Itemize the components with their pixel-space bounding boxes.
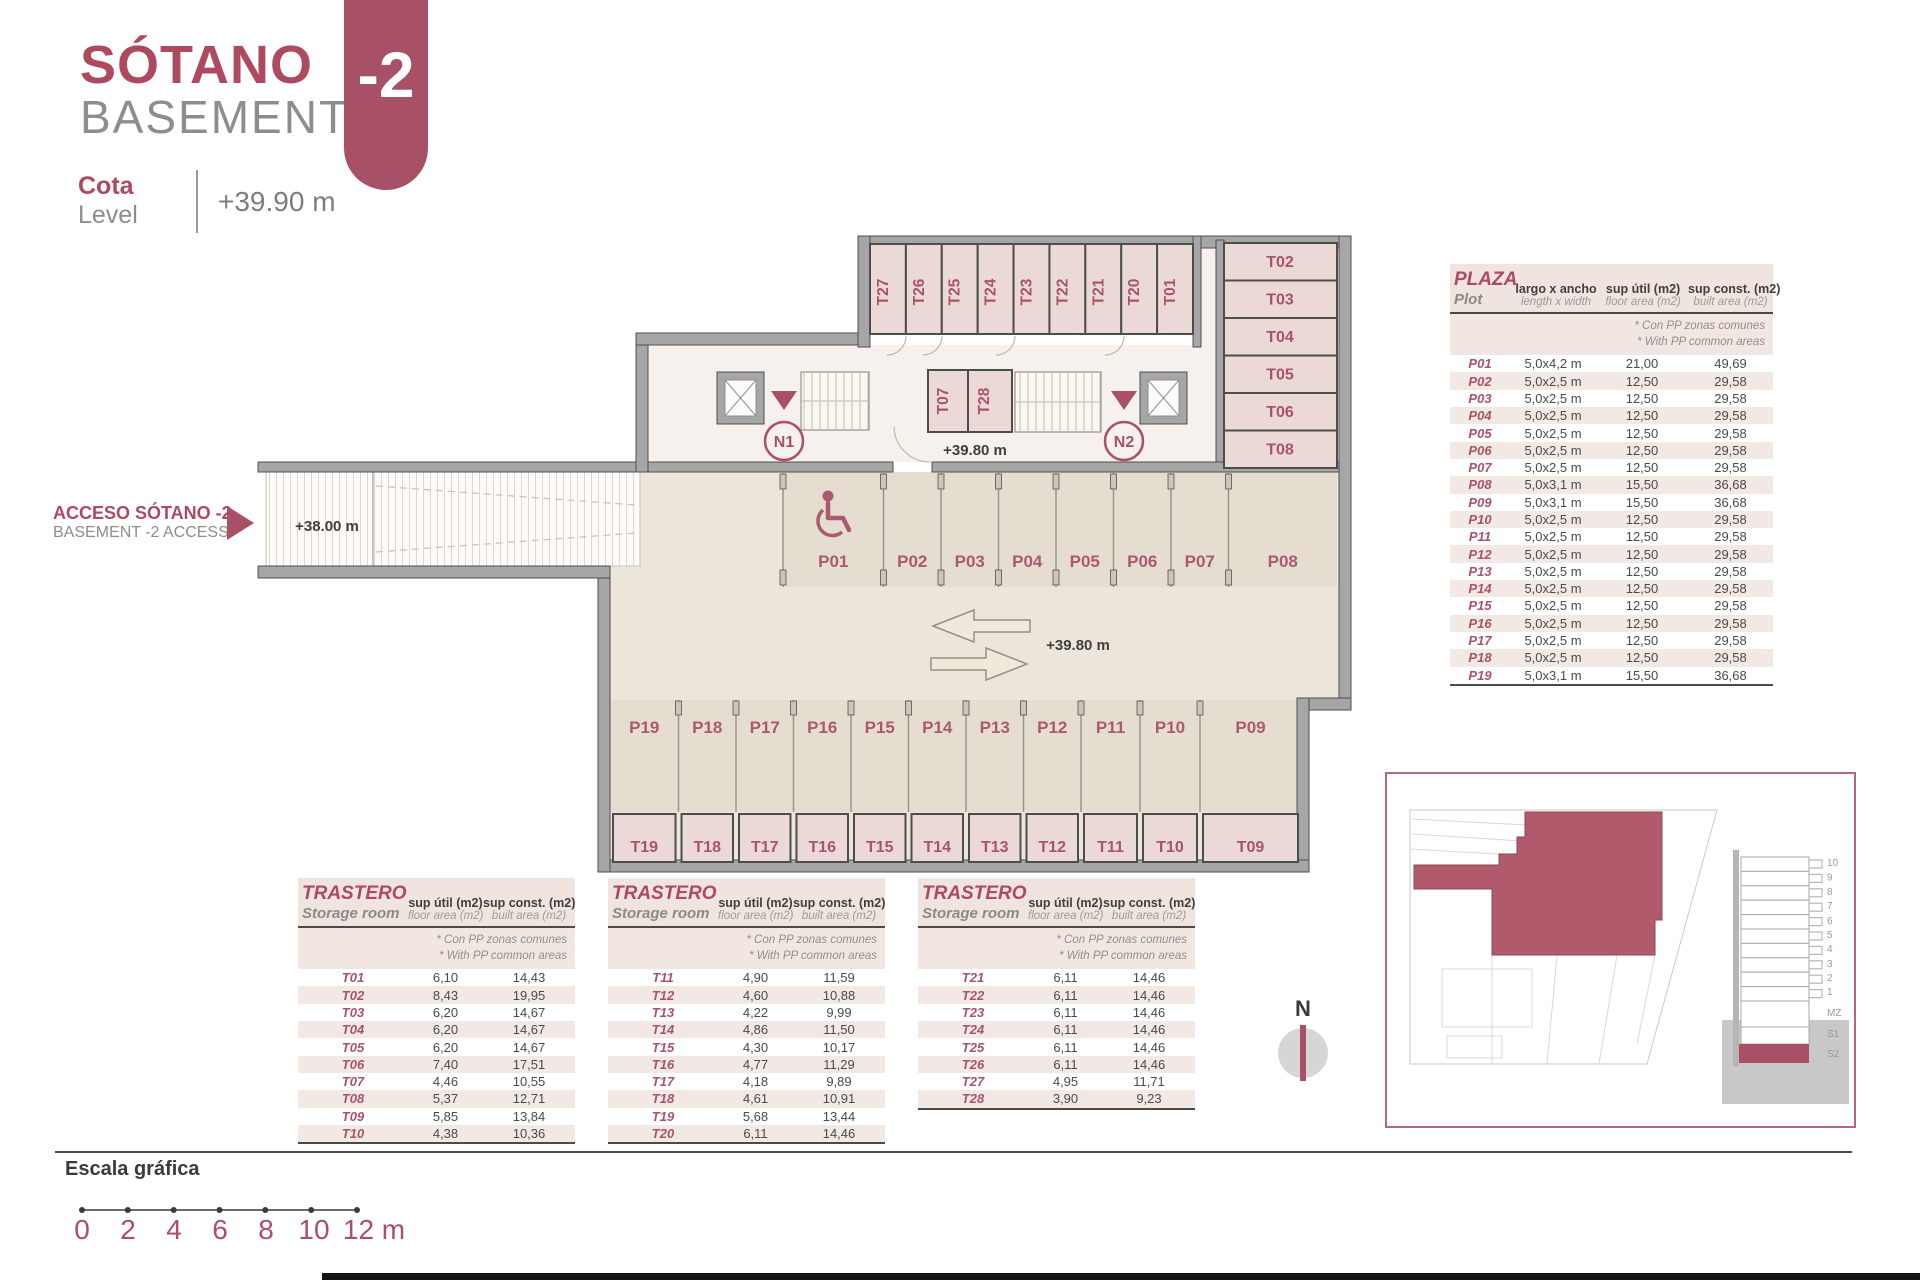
aisle-level-label: +39.80 m (1046, 637, 1110, 654)
page-subtitle: BASEMENT (80, 90, 349, 144)
room-label: T01 (1162, 278, 1179, 305)
room-label: T18 (693, 839, 721, 856)
table-row: T283,909,23 (918, 1090, 1195, 1107)
table-row: T206,1114,46 (608, 1125, 885, 1142)
plaza-title-es: PLAZA (1454, 269, 1514, 291)
section-floor-label: 2 (1827, 973, 1833, 984)
arrow-right-icon (931, 648, 1027, 680)
page-title: SÓTANO (80, 34, 313, 96)
table-row: T028,4319,95 (298, 986, 575, 1003)
table-row: P115,0x2,5 m12,5029,58 (1450, 528, 1773, 545)
level-label-es: Cota (78, 172, 134, 201)
table-row: T184,6110,91 (608, 1090, 885, 1107)
room-label: T05 (1266, 367, 1294, 384)
section-floor-label: S1 (1827, 1029, 1840, 1040)
table-row: T246,1114,46 (918, 1021, 1195, 1038)
north-core-triangle-icon (1111, 391, 1137, 410)
table-row: T256,1114,46 (918, 1038, 1195, 1055)
table-row: P185,0x2,5 m12,5029,58 (1450, 649, 1773, 666)
storage-table-3: TRASTERO Storage room sup útil (m2)floor… (918, 878, 1195, 1110)
table-row: T104,3810,36 (298, 1125, 575, 1142)
table-row: P025,0x2,5 m12,5029,58 (1450, 372, 1773, 389)
parking-stall-label: P04 (1012, 552, 1043, 571)
parking-stall-label: P18 (692, 718, 722, 737)
wheelchair-icon (818, 491, 849, 536)
scale-tick: 8 (258, 1214, 274, 1246)
room-label: T02 (1266, 254, 1294, 271)
room-label: T11 (1097, 839, 1124, 856)
section-floor-label: 1 (1827, 987, 1833, 998)
table-row: T046,2014,67 (298, 1021, 575, 1038)
section-floor-label: S2 (1827, 1049, 1840, 1060)
table-row: T164,7711,29 (608, 1056, 885, 1073)
scale-tick: 10 (298, 1214, 329, 1246)
parking-stall-label: P08 (1268, 552, 1298, 571)
table-row: P065,0x2,5 m12,5029,58 (1450, 442, 1773, 459)
compass-icon (1278, 1028, 1328, 1078)
table-row: T266,1114,46 (918, 1056, 1195, 1073)
table-row: P165,0x2,5 m12,5029,58 (1450, 615, 1773, 632)
room-label: T27 (875, 279, 892, 306)
table-row: P125,0x2,5 m12,5029,58 (1450, 545, 1773, 562)
highlighted-level-s2 (1739, 1044, 1809, 1063)
elevator-icon (1140, 372, 1187, 424)
plaza-title-en: Plot (1454, 291, 1514, 308)
table-row: T124,6010,88 (608, 986, 885, 1003)
footer-divider (55, 1151, 1852, 1153)
storage-table-1: TRASTERO Storage room sup útil (m2)floor… (298, 878, 575, 1144)
building-section: 10987654321MZS1S2 (1722, 850, 1849, 1104)
floor-fills (610, 240, 1339, 860)
table-row: T134,229,99 (608, 1004, 885, 1021)
table-row: T074,4610,55 (298, 1073, 575, 1090)
parking-stall-label: P12 (1037, 718, 1067, 737)
floor-badge: -2 (344, 0, 428, 190)
core-level-label: +39.80 m (943, 442, 1007, 459)
table-row: T195,6813,44 (608, 1108, 885, 1125)
storage-rooms-right: T02T03T04T05T06T08 (1224, 243, 1337, 468)
table-row: T016,1014,43 (298, 969, 575, 986)
access-label-en: BASEMENT -2 ACCESS (53, 524, 215, 542)
scale-tick: 12 m (343, 1214, 405, 1246)
room-label: T10 (1156, 839, 1184, 856)
room-label: T19 (630, 839, 658, 856)
building-footprint (1414, 812, 1662, 955)
room-label: T23 (1019, 278, 1036, 305)
plaza-table-header: PLAZA Plot largo x ancholength x width s… (1450, 264, 1773, 314)
section-floor-label: 10 (1827, 858, 1839, 869)
parking-row-bottom: P19P18P17P16P15P14P13P12P11P10P09 (629, 700, 1266, 812)
section-floor-label: 8 (1827, 887, 1833, 898)
parking-stall-label: P05 (1070, 552, 1100, 571)
parking-stall-label: P14 (922, 718, 953, 737)
room-label: T15 (866, 839, 894, 856)
parking-stall-label: P19 (629, 718, 659, 737)
table-row: P085,0x3,1 m15,5036,68 (1450, 476, 1773, 493)
table-row: T036,2014,67 (298, 1004, 575, 1021)
table-row: T236,1114,46 (918, 1004, 1195, 1021)
table-row: T154,3010,17 (608, 1038, 885, 1055)
page-edge-bar (322, 1273, 1920, 1280)
scale-tick: 2 (120, 1214, 136, 1246)
scale-tick: 6 (212, 1214, 228, 1246)
room-label: T21 (1090, 278, 1107, 305)
storage-rooms-bottom: T19T18T17T16T15T14T13T12T11T10T09 (613, 814, 1298, 862)
table-row: P135,0x2,5 m12,5029,58 (1450, 563, 1773, 580)
parking-stall-label: P02 (897, 552, 927, 571)
table-row: P175,0x2,5 m12,5029,58 (1450, 632, 1773, 649)
scale-tick: 4 (166, 1214, 182, 1246)
section-floor-label: 4 (1827, 944, 1833, 955)
parking-stall-label: P13 (980, 718, 1010, 737)
section-floor-label: 6 (1827, 916, 1833, 927)
table-row: P195,0x3,1 m15,5036,68 (1450, 667, 1773, 684)
access-arrow-icon (227, 506, 254, 540)
room-label: T06 (1266, 404, 1294, 421)
room-label: T09 (1237, 839, 1265, 856)
section-floor-label: 5 (1827, 930, 1833, 941)
scale-tick: 0 (74, 1214, 90, 1246)
ramp-level-label: +38.00 m (295, 518, 359, 535)
core-label-n1: N1 (774, 434, 795, 451)
parking-stall-label: P07 (1185, 552, 1215, 571)
level-value: +39.90 m (218, 186, 336, 218)
room-label: T22 (1054, 279, 1071, 306)
arrow-left-icon (933, 610, 1030, 642)
parking-stall-label: P17 (750, 718, 780, 737)
stairs-icon (1015, 372, 1101, 432)
drive-aisle: +39.80 m (931, 610, 1110, 680)
table-row: P095,0x3,1 m15,5036,68 (1450, 494, 1773, 511)
plaza-table-note: * Con PP zonas comunes * With PP common … (1450, 314, 1773, 355)
table-row: T216,1114,46 (918, 969, 1195, 986)
north-core-triangle-icon (771, 391, 797, 410)
table-row: T226,1114,46 (918, 986, 1195, 1003)
section-floor-label: 3 (1827, 959, 1833, 970)
access-label-es: ACCESO SÓTANO -2 (53, 503, 215, 524)
table-row: T174,189,89 (608, 1073, 885, 1090)
table-row: T085,3712,71 (298, 1090, 575, 1107)
table-row: T095,8513,84 (298, 1108, 575, 1125)
stairs-icon (801, 372, 869, 430)
room-label: T12 (1038, 839, 1066, 856)
parking-stall-label: P09 (1235, 718, 1265, 737)
north-compass: N (1277, 996, 1329, 1078)
table-row: P035,0x2,5 m12,5029,58 (1450, 390, 1773, 407)
plaza-table: PLAZA Plot largo x ancholength x width s… (1450, 264, 1773, 686)
section-floor-label: 7 (1827, 901, 1833, 912)
plaza-table-body: P015,0x4,2 m21,0049,69P025,0x2,5 m12,502… (1450, 355, 1773, 686)
stair-elevator-core: N1 N2 +39.80 m T07T28 (717, 370, 1187, 460)
table-row: T144,8611,50 (608, 1021, 885, 1038)
storage-table-2: TRASTERO Storage room sup útil (m2)floor… (608, 878, 885, 1144)
room-label: T04 (1266, 329, 1294, 346)
access-ramp: +38.00 m (266, 472, 640, 566)
parking-stall-label: P10 (1155, 718, 1185, 737)
parking-stall-label: P06 (1127, 552, 1157, 571)
parking-row-top: P01P02P03P04P05P06P07P08 (780, 472, 1298, 587)
table-row: T056,2014,67 (298, 1038, 575, 1055)
table-row: T274,9511,71 (918, 1073, 1195, 1090)
north-label: N (1277, 996, 1329, 1022)
section-floor-label: 9 (1827, 873, 1833, 884)
divider (196, 170, 198, 233)
walls (258, 236, 1351, 872)
storage-rooms-top: T27T26T25T24T23T22T21T20T01 (870, 244, 1193, 334)
table-row: T114,9011,59 (608, 969, 885, 986)
core-badge-n1 (765, 422, 803, 460)
room-label: T28 (976, 387, 993, 414)
elevator-icon (717, 372, 764, 424)
room-label: T24 (983, 278, 1000, 305)
room-label: T08 (1266, 442, 1294, 459)
section-floor-label: MZ (1827, 1008, 1841, 1019)
room-label: T17 (751, 839, 779, 856)
room-label: T13 (981, 839, 1009, 856)
table-row: P045,0x2,5 m12,5029,58 (1450, 407, 1773, 424)
table-row: T067,4017,51 (298, 1056, 575, 1073)
plan-sheet: SÓTANO BASEMENT Cota Level +39.90 m -2 A… (0, 0, 1920, 1280)
table-row: P105,0x2,5 m12,5029,58 (1450, 511, 1773, 528)
parking-stall-label: P03 (955, 552, 985, 571)
level-label-en: Level (78, 201, 138, 230)
room-label: T16 (808, 839, 836, 856)
parking-stall-label: P16 (807, 718, 837, 737)
core-label-n2: N2 (1114, 434, 1135, 451)
site-plan (1410, 810, 1717, 1064)
table-row: P145,0x2,5 m12,5029,58 (1450, 580, 1773, 597)
table-row: P015,0x4,2 m21,0049,69 (1450, 355, 1773, 372)
table-row: P075,0x2,5 m12,5029,58 (1450, 459, 1773, 476)
room-label: T07 (935, 388, 952, 415)
room-label: T14 (923, 839, 951, 856)
room-label: T20 (1126, 279, 1143, 306)
parking-stall-label: P01 (818, 552, 848, 571)
parking-stall-label: P15 (865, 718, 895, 737)
key-plan-inset: 10987654321MZS1S2 (1385, 772, 1856, 1128)
scale-title: Escala gráfica (65, 1158, 200, 1181)
table-row: P055,0x2,5 m12,5029,58 (1450, 424, 1773, 441)
room-label: T26 (911, 278, 928, 305)
table-row: P155,0x2,5 m12,5029,58 (1450, 597, 1773, 614)
core-badge-n2 (1105, 422, 1143, 460)
parking-stall-label: P11 (1096, 718, 1125, 737)
room-label: T25 (947, 278, 964, 305)
door-arcs (887, 336, 1124, 462)
room-label: T03 (1266, 292, 1294, 309)
